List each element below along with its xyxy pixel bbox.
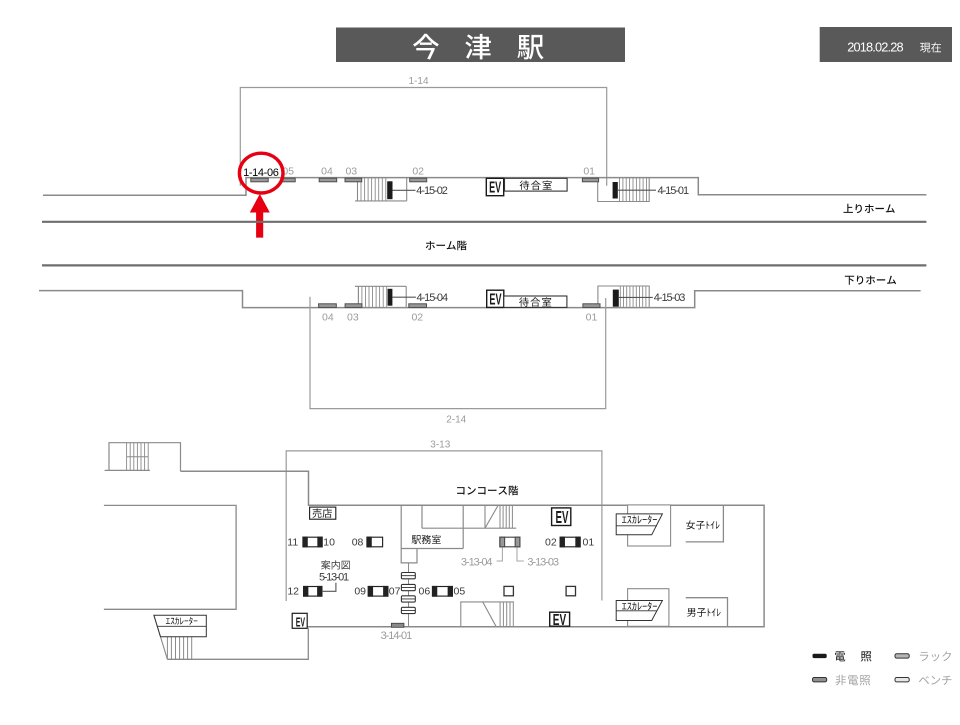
svg-text:02: 02 bbox=[412, 165, 424, 177]
svg-text:01: 01 bbox=[583, 536, 595, 548]
svg-text:06: 06 bbox=[419, 586, 431, 598]
svg-text:09: 09 bbox=[354, 586, 366, 598]
svg-text:2018.02.28: 2018.02.28 bbox=[847, 39, 903, 54]
svg-text:08: 08 bbox=[352, 536, 364, 548]
svg-text:04: 04 bbox=[321, 165, 333, 177]
svg-text:1-14-06: 1-14-06 bbox=[243, 167, 279, 179]
svg-text:01: 01 bbox=[586, 311, 598, 323]
svg-text:1-14: 1-14 bbox=[408, 76, 428, 87]
svg-text:EV: EV bbox=[553, 612, 567, 629]
svg-text:03: 03 bbox=[347, 311, 359, 323]
svg-text:02: 02 bbox=[545, 536, 557, 548]
svg-text:EV: EV bbox=[489, 292, 501, 309]
svg-text:EV: EV bbox=[489, 180, 501, 197]
svg-text:3-13: 3-13 bbox=[430, 440, 450, 451]
svg-text:4-15-03: 4-15-03 bbox=[654, 292, 685, 304]
svg-text:3-13-04: 3-13-04 bbox=[461, 556, 492, 568]
svg-text:3-13-03: 3-13-03 bbox=[527, 556, 558, 568]
svg-text:02: 02 bbox=[411, 311, 423, 323]
svg-text:4-15-01: 4-15-01 bbox=[658, 185, 689, 197]
svg-text:01: 01 bbox=[583, 165, 595, 177]
svg-text:07: 07 bbox=[389, 586, 401, 598]
svg-text:5-13-01: 5-13-01 bbox=[319, 571, 349, 583]
svg-text:11: 11 bbox=[287, 536, 298, 548]
svg-text:3-14-01: 3-14-01 bbox=[381, 630, 412, 642]
svg-text:04: 04 bbox=[322, 311, 334, 323]
svg-text:03: 03 bbox=[345, 165, 357, 177]
svg-text:10: 10 bbox=[323, 536, 335, 548]
svg-text:12: 12 bbox=[287, 586, 299, 598]
svg-text:EV: EV bbox=[296, 616, 306, 630]
svg-text:4-15-02: 4-15-02 bbox=[416, 185, 447, 197]
svg-text:05: 05 bbox=[454, 586, 466, 598]
svg-text:EV: EV bbox=[556, 507, 569, 527]
svg-text:4-15-04: 4-15-04 bbox=[417, 292, 448, 304]
svg-text:2-14: 2-14 bbox=[446, 415, 466, 426]
